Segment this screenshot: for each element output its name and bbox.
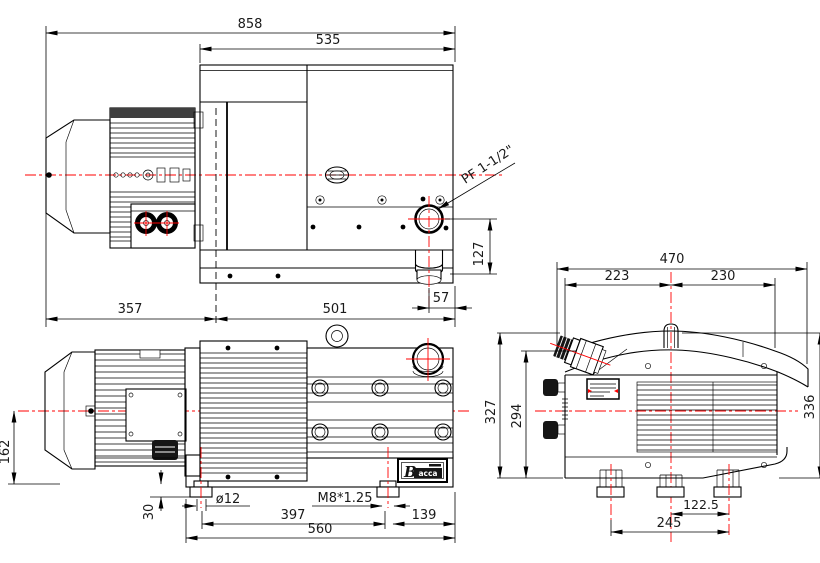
dim-cover-height: 336: [803, 395, 818, 420]
dim-width-right: 230: [711, 269, 736, 284]
dim-base-length: 560: [308, 522, 333, 537]
dim-overall-length: 858: [238, 17, 263, 32]
label-port-thread: PF 1-1/2": [459, 143, 517, 188]
cooling-fins-end: [637, 382, 777, 452]
dim-rear-offset: 139: [412, 508, 437, 523]
motor-side: [45, 348, 200, 476]
drawing-sheet: 858 535 357 501 127 57 PF 1-1/2": [0, 0, 820, 563]
dim-pump-length: 535: [316, 33, 341, 48]
dim-hole-diameter: ø12: [216, 492, 241, 507]
terminal-box: [131, 204, 195, 248]
dim-port-height: 127: [472, 242, 487, 267]
dim-shaft-height: 162: [0, 440, 13, 465]
dim-overall-width: 470: [660, 252, 685, 267]
motor-flange-adapter: [194, 112, 203, 241]
pump-fins-side: [200, 341, 307, 481]
dim-hole-thread: M8*1.25: [318, 491, 373, 506]
adapter-housing: [185, 348, 200, 476]
dim-foot-center-offset: 122.5: [683, 497, 719, 512]
motor-fan-cover: [46, 120, 110, 233]
dim-port-offset: 57: [433, 291, 450, 306]
dim-motor-section: 357: [118, 302, 143, 317]
brand-text: acca: [418, 469, 437, 478]
eyebolt: [326, 325, 348, 347]
dim-foot-height: 30: [142, 504, 157, 521]
inlet-assembly: [545, 329, 615, 379]
end-dimensions: 470 223 230 327 294 336 122.5 245: [484, 252, 820, 536]
end-nameplate: [587, 379, 619, 399]
motor-frame-panel: [126, 389, 186, 441]
dim-hole-spacing: 397: [281, 508, 306, 523]
cable-gland-side: [152, 440, 178, 460]
oil-sight-plug: [326, 167, 349, 183]
motor-fan-cover-side: [45, 352, 95, 469]
dim-width-left: 223: [605, 269, 630, 284]
motor-body: [110, 108, 203, 248]
dim-pump-section: 501: [323, 302, 348, 317]
pump-body-plan: [200, 65, 453, 308]
plan-dimensions: 858 535 357 501 127 57 PF 1-1/2": [46, 17, 517, 327]
plan-view: 858 535 357 501 127 57 PF 1-1/2": [25, 17, 517, 327]
end-view: 470 223 230 327 294 336 122.5 245: [484, 252, 820, 542]
oil-plugs: [543, 379, 568, 439]
dim-inlet-height: 294: [510, 404, 525, 429]
side-view: B acca: [0, 325, 470, 543]
brand-nameplate: B acca: [398, 459, 447, 482]
pump-end-body: [543, 324, 808, 538]
pump-housing-side: [307, 338, 453, 458]
pump-dimension-drawing: 858 535 357 501 127 57 PF 1-1/2": [0, 0, 820, 563]
dim-overall-height: 327: [484, 400, 499, 425]
dim-foot-spacing: 245: [657, 516, 682, 531]
